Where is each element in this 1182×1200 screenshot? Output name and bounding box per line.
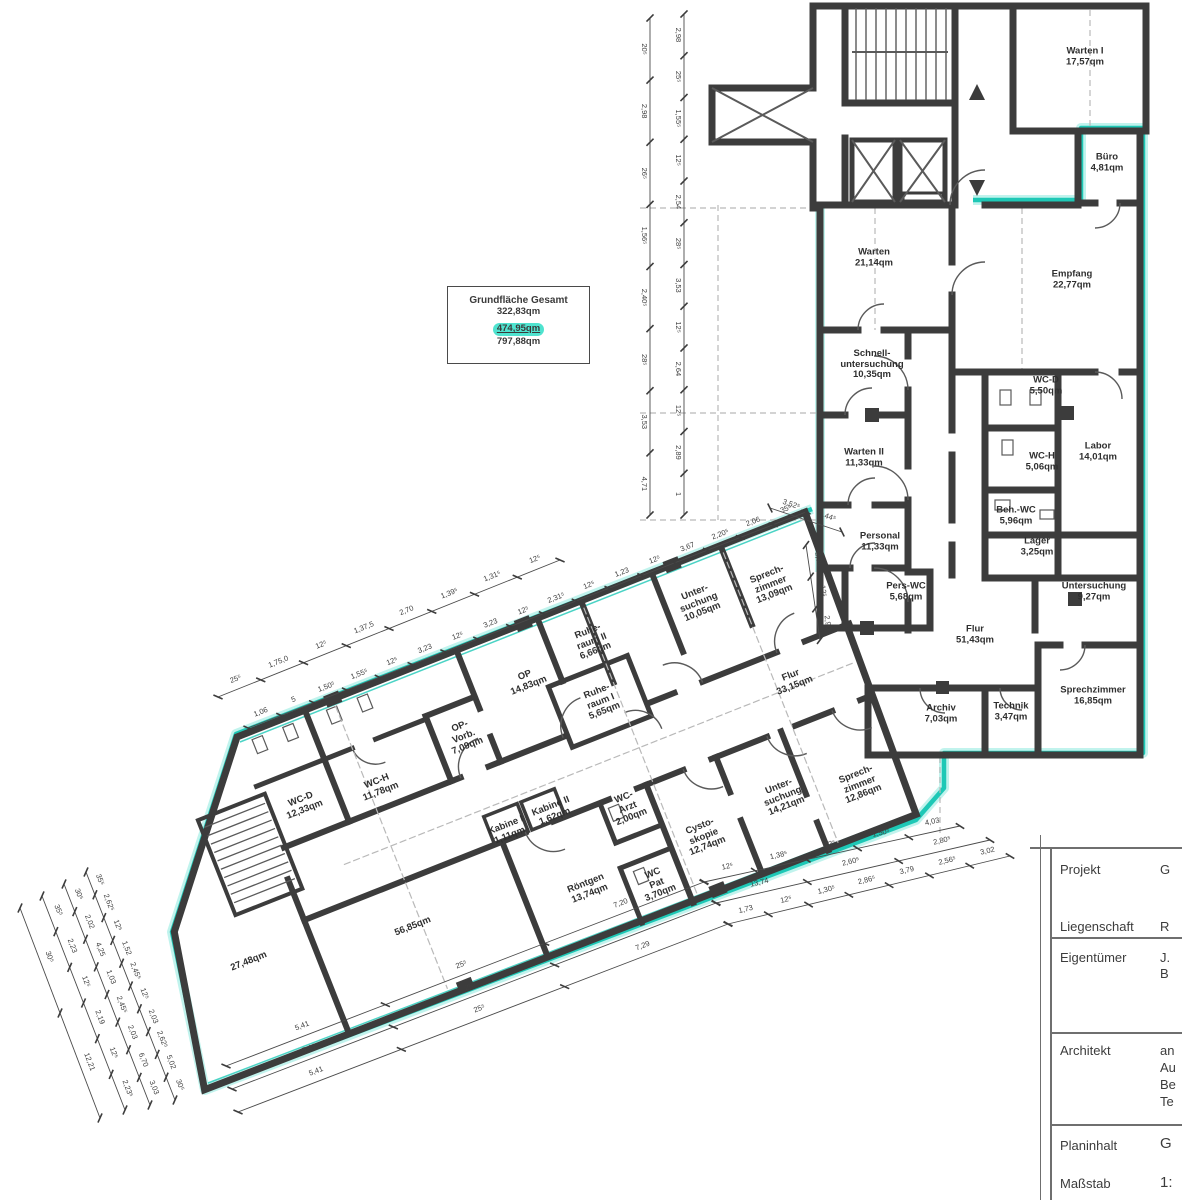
floorplan-sheet: 20⁵2,9826⁵1,56⁵2,40⁵28⁵3,534,712,9825⁵1,… [0,0,1182,1200]
dimension-label: 2,45⁵ [128,961,143,981]
dimension-label: 12⁵ [112,918,125,932]
dimension-label: 2,03 [147,1008,161,1025]
dimension-label: 1,56⁵ [640,227,649,245]
room-label-upper-3: Empfang22,77qm [1052,269,1093,290]
dimension-label: 7,20 [612,896,629,910]
titleblock-divider-1 [1050,937,1182,939]
dimension-label: 2,86 [813,551,824,567]
dimension-chain-8: 5,4125⁵7,29 [233,922,732,1114]
dimension-label: 25⁵ [674,71,683,82]
dimension-label: 12⁵ [385,655,399,668]
dimension-label: 2,23⁵ [120,1078,135,1098]
dimension-label: 2,54 [674,195,683,210]
dimension-label: 2,62⁵ [102,892,117,912]
dimension-label: 5,02 [165,1054,179,1071]
dimension-label: 35⁵ [52,903,65,917]
dimension-layer: 20⁵2,9826⁵1,56⁵2,40⁵28⁵3,534,712,9825⁵1,… [18,10,1014,1122]
dimension-label: 2,03 [126,1024,140,1041]
dimension-label: 2,98 [674,28,683,43]
dimension-label: 12⁵ [108,1046,121,1060]
dimension-label: 3,53 [640,415,649,430]
total-area-value-3: 797,88qm [448,336,589,348]
room-label-upper-8: Labor14,01qm [1079,441,1117,462]
dimension-label: 1,30⁵ [817,883,836,896]
room-label-upper-6: Warten II11,33qm [844,447,884,468]
dimension-label: 2,56⁵ [937,854,956,867]
dimension-label: 1,52 [120,940,134,957]
dimension-label: 12⁵ [138,987,151,1001]
dimension-label: 12⁵ [674,321,683,332]
dimension-label: 2,80⁵ [932,834,951,847]
room-label-upper-16: Technik3,47qm [993,701,1028,722]
dimension-label: 2,89 [674,445,683,460]
upper-building-details [712,8,1122,713]
dimension-chain-11: 1,7312⁵1,30⁵2,86⁵3,792,56⁵3,02 [724,845,1015,927]
dimension-chain-0: 20⁵2,9826⁵1,56⁵2,40⁵28⁵3,534,71 [640,14,654,518]
dimension-label: 30⁵ [174,1078,187,1092]
dimension-label: 12⁵ [779,894,792,905]
dimension-label: 1,37,5 [352,619,375,635]
dimension-chain-1: 2,9825⁵1,55⁵12⁵2,5428⁵3,5312⁵2,6412⁵2,89… [674,10,688,518]
dimension-label: 12⁵ [451,629,465,642]
dimension-label: 3,79 [899,864,915,876]
dimension-label: 4,71 [640,477,649,492]
dimension-label: 1,39⁵ [439,586,459,601]
dimension-label: 12⁵ [674,154,683,165]
room-label-upper-0: Warten I17,57qm [1066,46,1104,67]
total-area-title: Grundfläche Gesamt [448,295,589,306]
dimension-label: 1,75,0 [267,654,290,670]
dimension-label: 2,02 [83,913,97,930]
titleblock-divider-3 [1050,1124,1182,1126]
dimension-label: 2,62⁵ [155,1029,170,1049]
titleblock-value-eigentuemer-1: J. [1160,950,1170,965]
dimension-label: 2,23 [66,937,80,954]
titleblock-label-eigentuemer: Eigentümer [1060,950,1126,965]
dimension-label: 3,53 [674,278,683,293]
room-label-upper-4: Schnell-untersuchung10,35qm [840,349,903,381]
dimension-label: 2,40⁵ [640,289,649,307]
room-label-upper-5: WC-D5,50qm [1030,375,1063,396]
titleblock-label-planinhalt: Planinhalt [1060,1138,1117,1153]
titleblock-label-massstab: Maßstab [1060,1176,1111,1191]
dimension-label: 1,38⁵ [769,849,788,862]
dimension-label: 12,21 [82,1051,97,1072]
dimension-label: 1,55⁵ [674,110,683,128]
dimension-label: 1,31⁵ [482,568,502,583]
total-area-box: Grundfläche Gesamt 322,83qm 474,95qm 797… [447,286,590,364]
dimension-label: 3,02 [979,845,995,857]
dimension-label: 4,03 [924,815,940,827]
dimension-label: 2,98 [640,104,649,119]
dimension-label: 30⁵ [73,887,86,901]
dimension-label: 1,73 [738,903,754,915]
dimension-chain-12: 30⁵12,21 [18,903,102,1122]
dimension-label: 28⁵ [640,354,649,365]
titleblock-value-architekt-4: Te [1160,1094,1174,1109]
floorplan-drawing: 20⁵2,9826⁵1,56⁵2,40⁵28⁵3,534,712,9825⁵1,… [0,0,1182,1200]
stair-treads [852,8,948,100]
room-label-upper-12: Pers-WC5,68qm [886,581,926,602]
dimension-label: 2,60⁵ [841,855,860,868]
dimension-label: 5,41 [293,1019,310,1033]
room-label-upper-15: Archiv7,03qm [925,703,958,724]
dimension-chain-15: 35⁵2,62⁵12⁵1,522,45⁵12⁵2,032,62⁵5,0230⁵ [84,867,187,1104]
titleblock-label-liegenschaft: Liegenschaft [1060,919,1134,934]
dimension-chain-6: 5,4125⁵7,20 [221,880,708,1068]
dimension-label: 2,86⁵ [857,873,876,886]
total-area-value-2-highlighted: 474,95qm [493,323,544,335]
dimension-label: 12⁵ [721,861,734,872]
titleblock-value-eigentuemer-2: B [1160,966,1169,981]
total-area-value-1: 322,83qm [448,306,589,318]
titleblock-left-border [1050,847,1052,1200]
titleblock-top-border [1030,847,1182,849]
dimension-chain-7: 5,4125⁵7,29 [227,901,720,1091]
room-label-upper-13: Untersuchung9,27qm [1062,581,1126,602]
dimension-label: 2,45⁵ [115,995,130,1015]
titleblock-divider-2 [1050,1032,1182,1034]
dimension-label: 25⁵ [472,1002,486,1015]
room-label-upper-17: Sprechzimmer16,85qm [1060,685,1125,706]
dimension-label: 1,03 [105,968,119,985]
wing-stair-treads [205,804,294,903]
dimension-label: 6,70 [137,1051,151,1068]
titleblock-label-projekt: Projekt [1060,862,1100,877]
titleblock-label-architekt: Architekt [1060,1043,1111,1058]
dimension-label: 30⁵ [44,950,56,964]
dimension-label: 5 [290,694,297,704]
dimension-label: 25⁵ [454,958,468,971]
highlight-outline [172,128,1146,1090]
dimension-label: 5,41 [307,1064,324,1078]
dimension-label: 2,19 [93,1009,107,1026]
dimension-label: 2,70 [398,603,415,617]
room-label-upper-11: Lager3,25qm [1021,536,1054,557]
dimension-label: 2,64 [674,362,683,377]
dimension-label: 20⁵ [640,43,649,54]
room-label-upper-14: Flur51,43qm [956,624,994,645]
dimension-label: 28⁵ [674,238,683,249]
dimension-label: 3,03 [148,1079,162,1096]
dimension-label: 26⁵ [640,168,649,179]
titleblock-value-liegenschaft: R [1160,919,1169,934]
room-label-upper-2: Warten21,14qm [855,247,893,268]
dimension-label: 7,29 [634,939,651,953]
sheet-edge-line [1040,835,1041,1200]
titleblock-value-massstab: 1: [1160,1174,1173,1191]
dimension-label: 12⁵ [818,585,829,598]
direction-arrows [969,84,985,196]
dimension-label: 12⁵ [80,974,93,988]
dimension-label: 35⁵ [94,873,107,887]
dimension-label: 1,06 [252,705,269,719]
dimension-label: 12⁵ [314,638,328,651]
room-label-upper-10: Personal11,33qm [860,531,900,552]
door-arcs-wing [352,568,871,908]
room-label-upper-1: Büro4,81qm [1091,152,1124,173]
titleblock-value-architekt-2: Au [1160,1060,1176,1075]
titleblock-value-architekt-3: Be [1160,1077,1176,1092]
titleblock-value-projekt: G [1160,862,1170,877]
titleblock-value-architekt-1: an [1160,1043,1174,1058]
titleblock-value-planinhalt: G [1160,1135,1172,1152]
dimension-label: 4,25 [94,941,108,958]
room-label-upper-7: WC-H5,06qm [1026,451,1059,472]
dimension-label: 12⁵ [674,405,683,416]
dimension-label: 1 [674,492,683,496]
dimension-label: 12⁵ [528,553,542,566]
upper-building-walls [712,6,1146,755]
room-label-upper-9: Beh.-WC5,96qm [996,505,1036,526]
dimension-label: 25⁵ [228,672,242,685]
